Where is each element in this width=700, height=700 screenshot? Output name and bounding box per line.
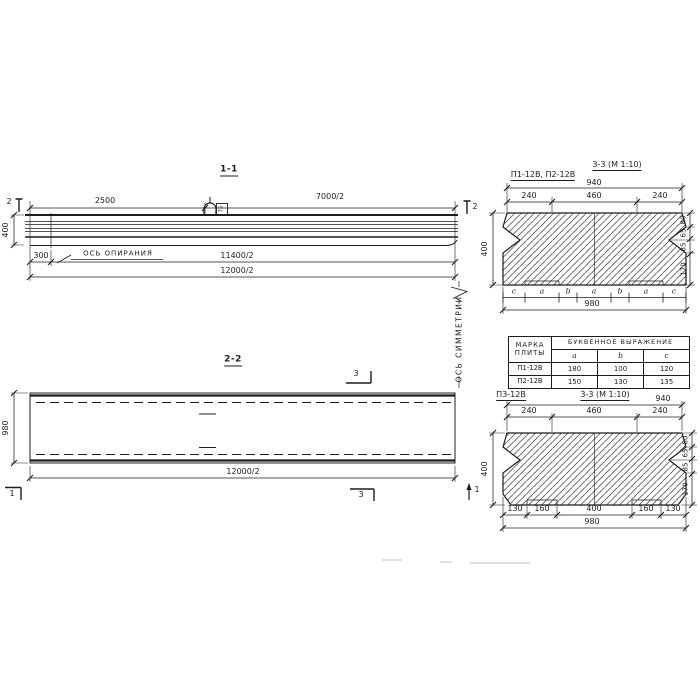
dim-240-right-bottom: 240 [652,407,667,415]
dim-980-bottom: 980 [584,518,599,526]
dim-400-elevation: 400 [2,222,10,237]
dim-460-top: 460 [586,192,601,200]
dim-12000-half-plan: 12000/2 [226,468,259,476]
dim-65-top: 65 [681,229,688,238]
dim-11400-half: 11400/2 [220,252,253,260]
section-1-1-title: 1-1 [220,166,238,177]
dim-130-right: 130 [665,505,680,513]
table-col-a: a [552,350,598,363]
section-3-3-top-title: 3-3 (М 1:10) [592,161,641,171]
letter-a-3: a [644,287,648,295]
letter-b-1: b [566,287,571,295]
table-cell-c-1: 120 [644,363,690,376]
table-cell-mark-2: П2-12В [509,376,552,389]
faint-print-smudge [382,560,530,563]
dim-65-bottom: 65 [683,449,690,458]
dim-940-top: 940 [586,179,601,187]
dim-160-right: 160 [638,505,653,513]
table-col-b: b [598,350,644,363]
dim-400-center: 400 [586,505,601,513]
section-3-3-top-marks: П1-12В, П2-12В [511,171,575,181]
table-row: П2-12В 150 130 135 [509,376,690,389]
dim-980-top: 980 [584,300,599,308]
dim-160-left: 160 [534,505,549,513]
cut-marks [5,199,472,501]
dim-80-top: 80 [681,216,688,225]
support-axis-label: ОСЬ ОПИРАНИЯ [83,251,153,258]
section-2-2-title: 2-2 [224,356,242,367]
letter-c-2: c [672,287,676,295]
dim-240-left-top: 240 [521,192,536,200]
dim-12000-half-elevation: 12000/2 [220,267,253,275]
cut-mark-3-bottom-label: 3 [358,491,363,499]
dim-130-left: 130 [507,505,522,513]
table-cell-c-2: 135 [644,376,690,389]
table-cell-a-2: 150 [552,376,598,389]
cut-mark-2-right-label: 2 [472,203,477,211]
dim-400-bottom-section: 400 [481,461,489,476]
cut-mark-1-left-label: 1 [9,490,14,498]
dim-240-right-top: 240 [652,192,667,200]
table-cell-mark-1: П1-12В [509,363,552,376]
table-cell-b-2: 130 [598,376,644,389]
table-cell-a-1: 180 [552,363,598,376]
dim-2500: 2500 [95,197,115,205]
dim-170-bottom: 170 [683,482,690,495]
dim-940-bottom: 940 [655,395,670,403]
dim-85-top: 85 [681,242,688,251]
lifting-loop-label: 75 [219,206,225,213]
section-3-3-bottom-mark: П3-12В [496,391,526,401]
table-header-mark: МАРКА ПЛИТЫ [509,337,552,363]
cut-mark-2-left-label: 2 [6,198,11,206]
symmetry-axis-label: ОСЬ СИММЕТРИИ [455,295,463,382]
dim-7000-half: 7000/2 [316,193,344,201]
dim-400-top-section: 400 [481,241,489,256]
table-col-c: c [644,350,690,363]
letter-values-table: МАРКА ПЛИТЫ БУКВЕННОЕ ВЫРАЖЕНИЕ a b c П1… [508,336,690,389]
letter-a-1: a [540,287,544,295]
dim-170-top: 170 [681,262,688,275]
table-row: П1-12В 180 100 120 [509,363,690,376]
table-cell-b-1: 100 [598,363,644,376]
dim-240-left-bottom: 240 [521,407,536,415]
table-header-group: БУКВЕННОЕ ВЫРАЖЕНИЕ [552,337,690,350]
letter-a-2: a [592,287,596,295]
section-3-3-bottom-title: 3-3 (М 1:10) [580,391,629,401]
cut-mark-3-top-label: 3 [353,370,358,378]
section-3-3-bottom-geometry [503,433,686,505]
dim-300: 300 [33,252,48,260]
letter-b-2: b [618,287,623,295]
cut-mark-1-right-label: 1 [474,486,479,494]
dim-980-plan: 980 [2,420,10,435]
letter-c-1: c [512,287,516,295]
dim-80-bottom: 80 [683,436,690,445]
dim-85-bottom: 85 [683,462,690,471]
dim-460-bottom: 460 [586,407,601,415]
view-2-2-geometry [30,393,455,463]
engineering-drawing-sheet: 1-1 2500 7000/2 2 2 400 300 ОСЬ ОПИРАНИЯ… [0,0,700,700]
